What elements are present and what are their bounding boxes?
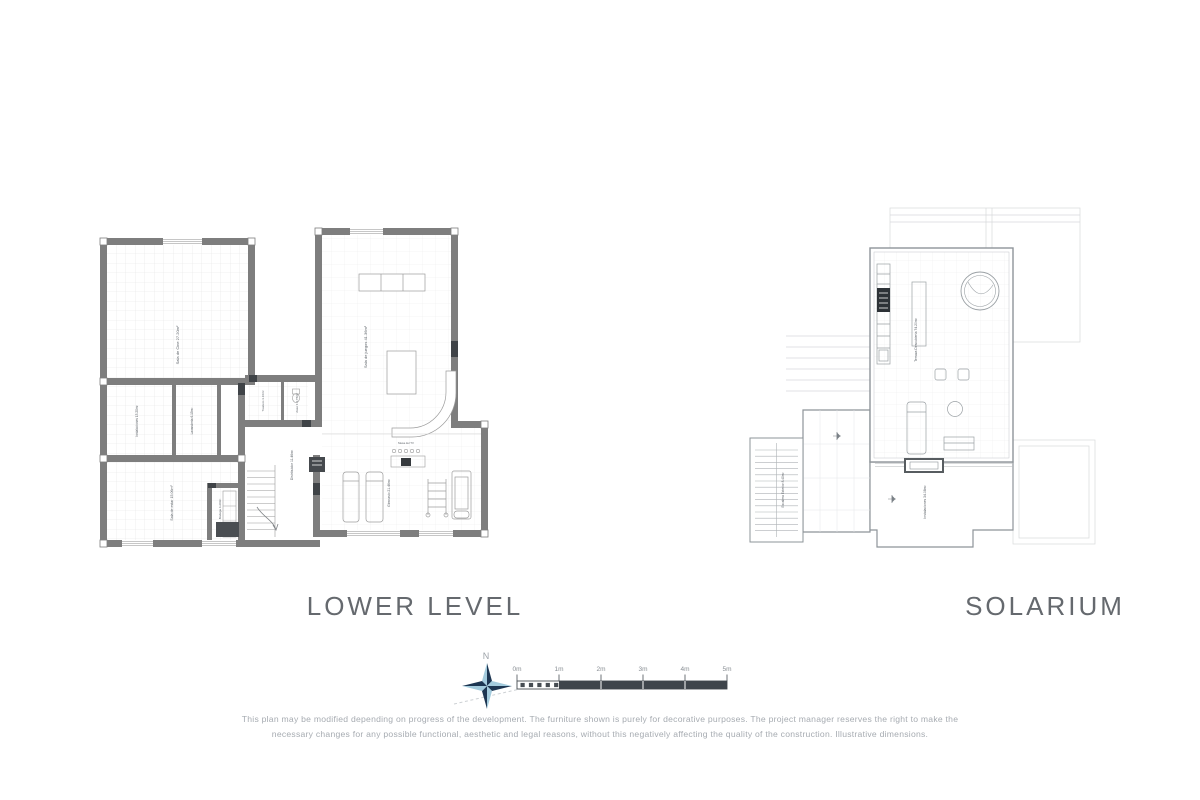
solarium-title: SOLARIUM — [930, 591, 1160, 622]
north-label: N — [483, 651, 490, 661]
stairs — [247, 465, 278, 537]
solarium-floor-plan: Escalera Exterior 8.40m² — [740, 200, 1110, 560]
scale-tick-5: 5m — [722, 666, 731, 673]
utility-block — [216, 522, 239, 537]
room-label-bodega: Bodega 4.20m² — [218, 499, 222, 520]
scale-tick-0: 0m — [512, 666, 521, 673]
room-label-lavanderia: Lavandería 6.15m² — [190, 408, 194, 435]
room-label-sala-juegos: Sala de juegos 41.36m² — [363, 325, 368, 368]
room-label-instalaciones: Instalaciones 13.20m² — [135, 405, 139, 436]
scale-ticks — [517, 675, 727, 682]
scale-bar: 0m 1m 2m 3m 4m 5m — [510, 662, 735, 694]
exterior-stairs: Escalera Exterior 8.40m² — [750, 438, 803, 542]
room-label-cinema: Sala de Cine 27.20m² — [175, 325, 180, 364]
compass-star — [462, 663, 512, 709]
room-label-aseo: Aseo 1 2.76m² — [295, 393, 299, 413]
lower-level-floor-plan: Mesa del TV Sala de Cine 27.20m² In — [97, 225, 497, 570]
disclaimer-line-2: necessary changes for any possible funct… — [100, 727, 1100, 742]
room-label-terraza: Terraza Descubierta 74.20m² — [914, 317, 918, 362]
tv-table-label: Mesa del TV — [398, 441, 414, 445]
room-label-instalaciones-sol: Instalaciones 34.08m² — [923, 485, 927, 519]
room-label-distribuidor: Distribuidor 11.46m² — [290, 449, 294, 480]
upper-terrace — [870, 248, 1013, 462]
disclaimer-line-1: This plan may be modified depending on p… — [100, 712, 1100, 727]
room-label-gimnasio: Gimnasio 21.46m² — [387, 478, 391, 507]
scale-tick-3: 3m — [638, 666, 647, 673]
floor-plan-page: Mesa del TV Sala de Cine 27.20m² In — [0, 0, 1200, 800]
tv-icon — [401, 458, 411, 466]
room-label-trastero: Trastero 3.16m² — [261, 390, 265, 411]
fireplace-block — [309, 457, 325, 472]
scale-labels: 0m 1m 2m 3m 4m 5m — [512, 666, 731, 673]
scale-tick-4: 4m — [680, 666, 689, 673]
scale-tick-1: 1m — [554, 666, 563, 673]
grill-icon — [877, 288, 890, 312]
scale-tick-2: 2m — [596, 666, 605, 673]
disclaimer: This plan may be modified depending on p… — [100, 712, 1100, 742]
room-label-sala-estar: Sala de estar 15.06m² — [170, 485, 174, 521]
room-label-escalera: Escalera Exterior 8.40m² — [781, 472, 785, 507]
lower-level-title: LOWER LEVEL — [280, 591, 550, 622]
